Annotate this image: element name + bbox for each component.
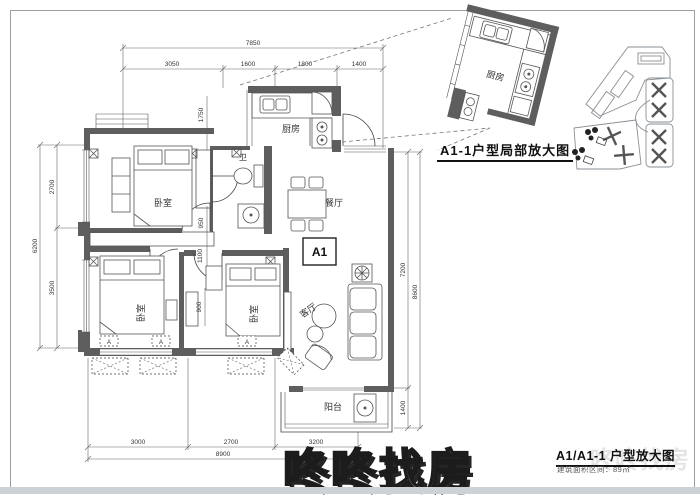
fridge-icon bbox=[312, 92, 332, 114]
dim-top-4: 1400 bbox=[352, 61, 367, 68]
sofa-icon bbox=[348, 284, 382, 360]
room-label-bedroom3: 卧室 bbox=[248, 305, 259, 323]
dim-top-2: 1600 bbox=[241, 61, 256, 68]
plant-icon bbox=[352, 264, 372, 282]
living-room-furniture bbox=[284, 264, 382, 371]
site-plan-minimap bbox=[572, 47, 673, 169]
bathroom-fixtures bbox=[234, 165, 264, 228]
dim-left-2: 3500 bbox=[49, 280, 56, 295]
bedroom3-bed-icon bbox=[206, 264, 280, 336]
dim-inner-900: 900 bbox=[196, 301, 203, 312]
bedroom1-bed-icon bbox=[112, 146, 192, 226]
washing-machine-icon bbox=[354, 394, 376, 422]
dimension-chain-left: 6200 2700 3500 bbox=[32, 142, 84, 351]
dim-bottom-2: 2700 bbox=[224, 439, 239, 446]
kitchen-fixtures bbox=[252, 92, 332, 148]
unit-label: A1 bbox=[312, 245, 328, 259]
dim-right-total: 8600 bbox=[412, 284, 419, 299]
floorplan-page: { "watermark": { "text": "咚咚找房" }, "titl… bbox=[0, 0, 700, 494]
sink-icon bbox=[260, 96, 290, 113]
dim-top-1: 3050 bbox=[165, 61, 180, 68]
room-label-bedroom2: 卧室 bbox=[135, 304, 146, 322]
dining-set-icon bbox=[288, 177, 326, 231]
unit-tag: A1 bbox=[303, 238, 336, 265]
floor-plan-canvas: 7850 3050 1600 1800 1400 6200 2700 3500 … bbox=[0, 0, 700, 494]
washbasin-icon bbox=[238, 204, 264, 228]
sheet-subtitle: 建筑面积区间：89㎡ bbox=[557, 464, 630, 475]
dim-top-3: 1800 bbox=[298, 61, 313, 68]
room-label-balcony: 阳台 bbox=[324, 401, 342, 412]
dim-bottom-total: 8900 bbox=[216, 451, 231, 458]
toilet-icon bbox=[234, 165, 263, 187]
dim-right-1: 7200 bbox=[400, 262, 407, 277]
tree-icons bbox=[572, 127, 607, 165]
room-label-living: 客厅 bbox=[297, 300, 318, 319]
tv-cabinet-icon bbox=[284, 292, 291, 350]
stove-icon bbox=[312, 118, 332, 148]
armchair-icon bbox=[304, 341, 334, 370]
page-edge bbox=[0, 487, 700, 494]
walls bbox=[78, 86, 394, 392]
room-label-bath: 卫 bbox=[239, 153, 247, 162]
dim-top-total: 7850 bbox=[246, 40, 261, 47]
building-slab-icon bbox=[591, 91, 614, 118]
dim-inner-1100: 1100 bbox=[197, 249, 204, 263]
dim-left-total: 6200 bbox=[32, 238, 39, 253]
ac-label: A bbox=[107, 340, 111, 346]
room-label-kitchen: 厨房 bbox=[282, 123, 300, 134]
room-label-dining: 餐厅 bbox=[325, 197, 343, 208]
dim-inner-1750: 1750 bbox=[198, 107, 205, 122]
dim-bottom-1: 3000 bbox=[131, 439, 146, 446]
dim-right-2: 1400 bbox=[400, 400, 407, 415]
dim-left-1: 2700 bbox=[49, 179, 56, 194]
building-slab-icon bbox=[610, 70, 633, 97]
ac-label: A bbox=[245, 340, 249, 346]
kitchen-detail-drawing: 厨房 bbox=[440, 4, 559, 137]
building-slab-icon bbox=[638, 53, 664, 64]
detail-fridge-icon bbox=[526, 28, 548, 52]
dimension-chain-right: 7200 1400 8600 bbox=[394, 149, 423, 431]
room-label-kitchen-detail: 厨房 bbox=[485, 68, 505, 83]
dim-inner-950: 950 bbox=[198, 217, 205, 228]
ac-label: A bbox=[159, 340, 163, 346]
detail-title: A1-1户型局部放大图 bbox=[437, 140, 573, 162]
room-label-bedroom1: 卧室 bbox=[154, 197, 172, 208]
